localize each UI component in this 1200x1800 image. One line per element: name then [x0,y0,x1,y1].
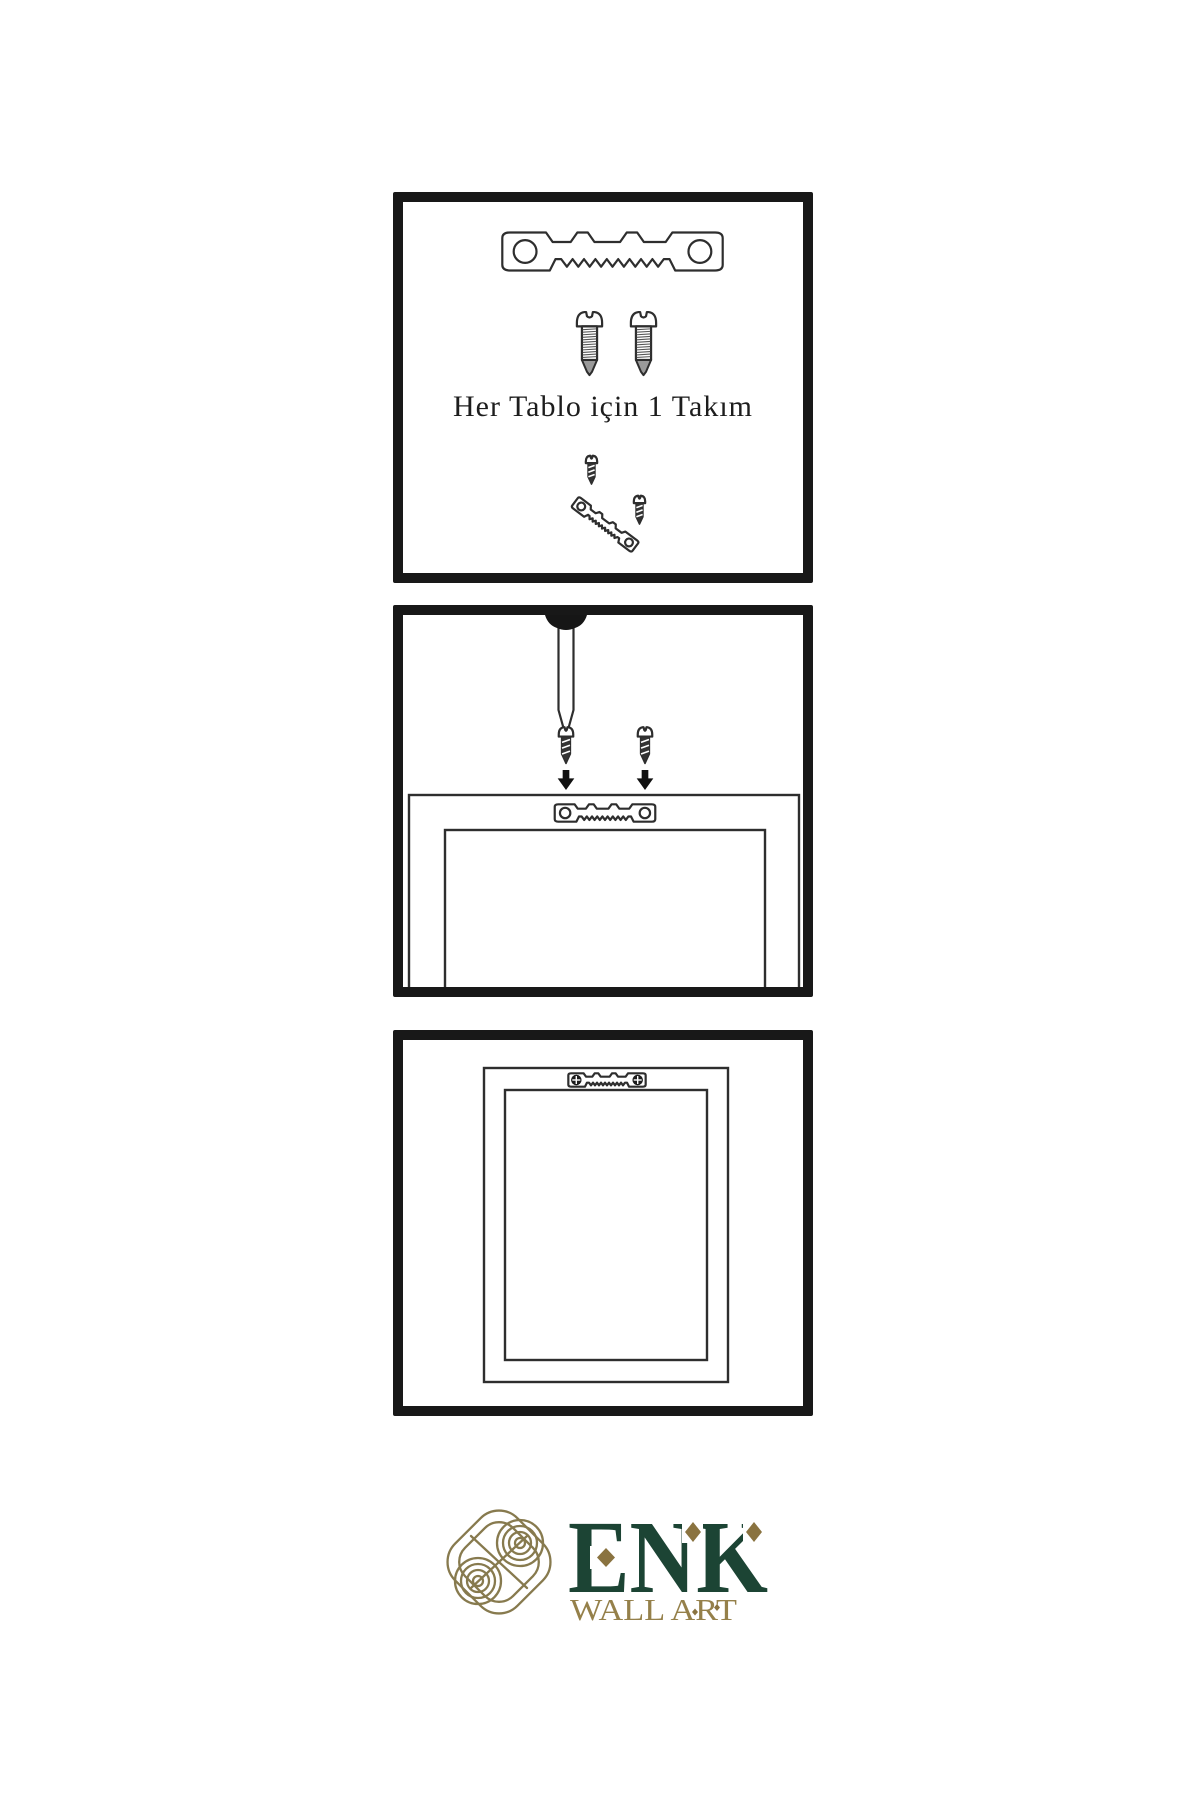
mounting-screw [577,312,602,375]
hardware-kit-illustration [403,202,803,573]
down-arrow [558,770,575,790]
wall-nail [545,615,587,737]
assembly-sketch [571,456,645,553]
mount-hanger-illustration [403,615,803,987]
step-3-hang-frame-panel [393,1030,813,1416]
down-arrow [637,770,654,790]
step-1-hardware-kit-panel: Her Tablo için 1 Takım [393,192,813,583]
knot-mark-icon [437,1500,561,1624]
hanging-instruction-sheet: Her Tablo için 1 Takım [0,0,1200,1800]
sawtooth-hanger [502,233,722,271]
mounting-screw [559,727,573,763]
sawtooth-hanger [555,804,656,821]
hardware-kit-caption: Her Tablo için 1 Takım [403,390,803,424]
mounting-screw [631,312,656,375]
mounting-screw [638,727,652,763]
installed-hanger-illustration [403,1040,803,1406]
frame-back [409,795,799,987]
brand-logo-graphic: ENK WALL ART [420,1480,820,1680]
brand-logo: ENK WALL ART [420,1480,820,1680]
brand-subtitle: WALL ART [570,1592,737,1627]
step-2-mount-hanger-panel [393,605,813,997]
frame-back [484,1068,728,1382]
